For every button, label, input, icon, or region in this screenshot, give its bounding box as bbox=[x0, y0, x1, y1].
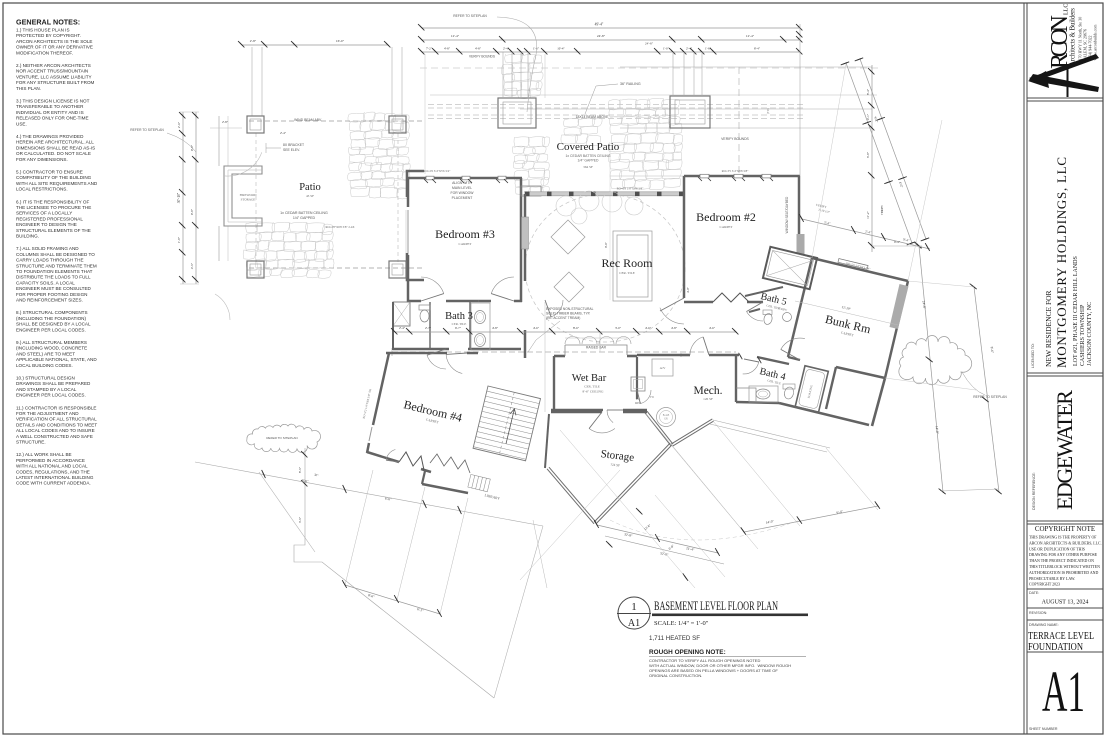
svg-text:12'-4": 12'-4" bbox=[451, 34, 460, 38]
svg-text:WINDOW SEAT/DAYBED: WINDOW SEAT/DAYBED bbox=[785, 196, 789, 233]
svg-text:8'-6": 8'-6" bbox=[573, 326, 580, 330]
svg-text:18X14 BEAM ABOVE: 18X14 BEAM ABOVE bbox=[576, 115, 610, 119]
svg-text:DIMENSIONS SHALL BE READ AS-IS: DIMENSIONS SHALL BE READ AS-IS bbox=[16, 145, 95, 150]
svg-text:ENGINEER MUST BE CONSULTED: ENGINEER MUST BE CONSULTED bbox=[16, 286, 92, 291]
svg-text:CODE WITH CURRENT ADDENDA.: CODE WITH CURRENT ADDENDA. bbox=[16, 481, 91, 486]
svg-text:AND STEEL) ARE TO MEET: AND STEEL) ARE TO MEET bbox=[16, 351, 75, 356]
svg-text:ENGINEER PER LOCAL CODES.: ENGINEER PER LOCAL CODES. bbox=[16, 393, 86, 398]
svg-text:ENGINEER PER LOCAL CODES.: ENGINEER PER LOCAL CODES. bbox=[16, 327, 86, 332]
svg-text:Rec Room: Rec Room bbox=[602, 256, 654, 270]
svg-text:INDIVIDUAL OR ENTITY AND IS: INDIVIDUAL OR ENTITY AND IS bbox=[16, 110, 84, 115]
svg-text:CER. TILE: CER. TILE bbox=[584, 385, 600, 389]
svg-text:3.) THIS DESIGN LICENSE IS NOT: 3.) THIS DESIGN LICENSE IS NOT bbox=[16, 99, 90, 104]
svg-text:9'-8": 9'-8" bbox=[190, 144, 194, 151]
svg-text:CARPET: CARPET bbox=[459, 242, 473, 246]
svg-text:11.) CONTRACTOR IS RESPONSIBLE: 11.) CONTRACTOR IS RESPONSIBLE bbox=[16, 405, 97, 410]
svg-text:VERIFICATION OF ALL STRUCTURAL: VERIFICATION OF ALL STRUCTURAL bbox=[16, 417, 97, 422]
svg-text:10'-4": 10'-4" bbox=[557, 47, 565, 51]
svg-text:2'-8": 2'-8" bbox=[222, 120, 229, 124]
svg-text:A WELL CONSTRUCTED AND SAFE: A WELL CONSTRUCTED AND SAFE bbox=[16, 434, 93, 439]
svg-text:SERVICES OF A LOCALLY: SERVICES OF A LOCALLY bbox=[16, 211, 72, 216]
svg-text:2'-4": 2'-4" bbox=[686, 47, 693, 51]
svg-text:DRAWING FOR ANY OTHER PURPOSE: DRAWING FOR ANY OTHER PURPOSE bbox=[1029, 553, 1098, 557]
svg-text:PROTECTED BY COPYRIGHT.: PROTECTED BY COPYRIGHT. bbox=[16, 33, 81, 38]
svg-text:WITH ALL SITE REQUIREMENTS AND: WITH ALL SITE REQUIREMENTS AND bbox=[16, 181, 98, 186]
svg-text:WITH ALL NATIONAL AND LOCAL: WITH ALL NATIONAL AND LOCAL bbox=[16, 464, 88, 469]
svg-text:VERIFY BOUNDS: VERIFY BOUNDS bbox=[469, 55, 495, 59]
svg-text:REVISION:: REVISION: bbox=[1029, 611, 1047, 615]
svg-text:4'-1": 4'-1" bbox=[866, 113, 870, 120]
svg-text:8.) STRUCTURAL COMPONENTS: 8.) STRUCTURAL COMPONENTS bbox=[16, 310, 88, 315]
svg-text:NEW RESIDENCE FOR: NEW RESIDENCE FOR bbox=[1044, 290, 1053, 367]
svg-text:THIS DRAWING IS THE PROPERTY O: THIS DRAWING IS THE PROPERTY OF bbox=[1029, 536, 1097, 540]
svg-text:ORIGINAL CONSTRUCTION.: ORIGINAL CONSTRUCTION. bbox=[649, 673, 702, 678]
svg-text:4.) THE DRAWINGS PROVIDED: 4.) THE DRAWINGS PROVIDED bbox=[16, 134, 84, 139]
svg-text:PLACEMENT: PLACEMENT bbox=[452, 196, 473, 200]
svg-text:RO=6'8 1/8"X6'8 3/8": RO=6'8 1/8"X6'8 3/8" bbox=[617, 187, 644, 191]
svg-text:8'-6": 8'-6" bbox=[604, 241, 608, 248]
svg-text:(TD): (TD) bbox=[766, 108, 770, 114]
svg-text:EDGEWATER: EDGEWATER bbox=[1052, 390, 1077, 510]
svg-text:RO=2'6 3/4"X5'6 3/4": RO=2'6 3/4"X5'6 3/4" bbox=[424, 169, 451, 173]
svg-text:1/4" GAPPED: 1/4" GAPPED bbox=[293, 216, 316, 220]
svg-text:8'-4": 8'-4" bbox=[866, 88, 870, 95]
svg-text:4'-6": 4'-6" bbox=[645, 326, 652, 330]
svg-text:REFER TO SITEPLAN: REFER TO SITEPLAN bbox=[973, 395, 1007, 399]
svg-text:EXPOSED NON-STRUCTURAL: EXPOSED NON-STRUCTURAL bbox=[546, 307, 594, 311]
svg-text:CODES, REGULATIONS, AND THE: CODES, REGULATIONS, AND THE bbox=[16, 469, 90, 474]
svg-text:Covered Patio: Covered Patio bbox=[557, 141, 620, 153]
svg-text:LATEST INTERNATIONAL BUILDING: LATEST INTERNATIONAL BUILDING bbox=[16, 475, 94, 480]
svg-text:TO FOUNDATION ELEMENTS THAT: TO FOUNDATION ELEMENTS THAT bbox=[16, 269, 93, 274]
svg-text:MODIFICATION THEREOF.: MODIFICATION THEREOF. bbox=[16, 50, 73, 55]
svg-text:43 SF: 43 SF bbox=[306, 194, 314, 198]
svg-text:OWNER OF IT OR ANY DERIVATIVE: OWNER OF IT OR ANY DERIVATIVE bbox=[16, 45, 93, 50]
svg-text:4'-8": 4'-8" bbox=[671, 326, 678, 330]
svg-text:DATE:: DATE: bbox=[1029, 591, 1039, 595]
svg-text:5.) CONTRACTOR TO ENSURE: 5.) CONTRACTOR TO ENSURE bbox=[16, 170, 83, 175]
svg-text:RO=3'5 3/4"X6'8 3/8": RO=3'5 3/4"X6'8 3/8" bbox=[722, 169, 749, 173]
svg-text:FOUNDATION: FOUNDATION bbox=[1028, 641, 1083, 653]
svg-text:CARRY LOADS THROUGH THE: CARRY LOADS THROUGH THE bbox=[16, 258, 84, 263]
svg-text:STRUCTURAL ELEMENTS OF THE: STRUCTURAL ELEMENTS OF THE bbox=[16, 228, 91, 233]
svg-text:1: 1 bbox=[631, 601, 637, 613]
svg-text:APPLICABLE NATIONAL, STATE, AN: APPLICABLE NATIONAL, STATE, AND bbox=[16, 357, 97, 362]
svg-text:BASEMENT LEVEL FLOOR PLAN: BASEMENT LEVEL FLOOR PLAN bbox=[654, 598, 778, 613]
svg-text:DISTRIBUTE THE LOADS TO FULL: DISTRIBUTE THE LOADS TO FULL bbox=[16, 275, 91, 280]
svg-text:THIS PLAN.: THIS PLAN. bbox=[16, 86, 41, 91]
svg-text:2'-4": 2'-4" bbox=[399, 326, 406, 330]
svg-text:A1: A1 bbox=[628, 618, 640, 629]
svg-text:11'-2": 11'-2" bbox=[866, 211, 870, 219]
svg-text:8'-6": 8'-6" bbox=[298, 466, 302, 473]
svg-text:6.) IT IS THE RESPONSIBILITY O: 6.) IT IS THE RESPONSIBILITY OF bbox=[16, 199, 89, 204]
svg-text:WIND BEAM ABV.: WIND BEAM ABV. bbox=[294, 118, 322, 122]
svg-text:DRAWING NAME:: DRAWING NAME: bbox=[1029, 623, 1059, 627]
svg-text:7'-2": 7'-2" bbox=[426, 47, 433, 51]
svg-text:Wet Bar: Wet Bar bbox=[572, 373, 607, 384]
svg-text:REFER TO SITEPLAN: REFER TO SITEPLAN bbox=[266, 436, 297, 440]
svg-text:FOR ANY DIMENSIONS.: FOR ANY DIMENSIONS. bbox=[16, 157, 68, 162]
svg-text:3'-6": 3'-6" bbox=[298, 516, 302, 523]
svg-text:VERIFY: VERIFY bbox=[881, 205, 884, 215]
svg-text:2'-0": 2'-0" bbox=[177, 121, 181, 128]
svg-text:(INCLUDING WOOD, CONCRETE: (INCLUDING WOOD, CONCRETE bbox=[16, 346, 87, 351]
svg-text:12.) ALL WORK SHALL BE: 12.) ALL WORK SHALL BE bbox=[16, 452, 72, 457]
svg-text:TRANSFERABLE TO ANOTHER: TRANSFERABLE TO ANOTHER bbox=[16, 104, 84, 109]
svg-text:Bedroom #3: Bedroom #3 bbox=[435, 227, 495, 241]
svg-text:AUTHORIZATION IS PROHIBITED AN: AUTHORIZATION IS PROHIBITED AND bbox=[1029, 571, 1098, 575]
svg-text:AUGUST 13, 2024: AUGUST 13, 2024 bbox=[1042, 600, 1089, 606]
svg-text:1'-8": 1'-8" bbox=[705, 47, 712, 51]
svg-text:BUILDING.: BUILDING. bbox=[16, 234, 39, 239]
svg-text:JACKSON COUNTY, NC: JACKSON COUNTY, NC bbox=[1087, 302, 1093, 366]
svg-text:2'-4": 2'-4" bbox=[503, 47, 510, 51]
svg-text:SCALE: 1/4" = 1'-0": SCALE: 1/4" = 1'-0" bbox=[654, 620, 709, 627]
svg-text:16'-0": 16'-0" bbox=[336, 39, 345, 43]
svg-text:THAN THE PROJECT INDICATED ON: THAN THE PROJECT INDICATED ON bbox=[1029, 559, 1094, 563]
svg-text:ROUGH OPENING NOTE:: ROUGH OPENING NOTE: bbox=[649, 649, 726, 656]
svg-text:COMPATIBILITY OF THE BUILDING: COMPATIBILITY OF THE BUILDING bbox=[16, 175, 92, 180]
svg-text:GENERAL NOTES:: GENERAL NOTES: bbox=[16, 18, 80, 27]
svg-text:7.) ALL SOLID FRAMING AND: 7.) ALL SOLID FRAMING AND bbox=[16, 246, 79, 251]
svg-text:STRUCTURE.: STRUCTURE. bbox=[16, 440, 46, 445]
svg-text:RO=2'8"X6'8 3/8" 2-4X: RO=2'8"X6'8 3/8" 2-4X bbox=[325, 225, 355, 229]
svg-text:USE OR DUPLICATION OF THIS: USE OR DUPLICATION OF THIS bbox=[1029, 547, 1085, 551]
svg-text:FOR THE ADJUSTMENT AND: FOR THE ADJUSTMENT AND bbox=[16, 411, 79, 416]
svg-text:4'-6": 4'-6" bbox=[190, 262, 194, 269]
svg-text:1/4" GAPPED: 1/4" GAPPED bbox=[578, 159, 600, 163]
svg-text:SEE ELEV.: SEE ELEV. bbox=[283, 148, 300, 152]
svg-text:4'-8": 4'-8" bbox=[492, 326, 499, 330]
svg-text:REFER TO SITEPLAN: REFER TO SITEPLAN bbox=[130, 128, 164, 132]
svg-text:MAIN LEVEL: MAIN LEVEL bbox=[452, 186, 472, 190]
svg-text:A1: A1 bbox=[1042, 659, 1085, 724]
svg-text:LOT #21, PHASE III CEDAR HILL: LOT #21, PHASE III CEDAR HILL LANDS bbox=[1073, 256, 1079, 366]
svg-text:GR: GR bbox=[664, 418, 668, 421]
svg-text:Bedroom #2: Bedroom #2 bbox=[696, 210, 756, 224]
svg-text:CARPET: CARPET bbox=[720, 225, 734, 229]
svg-text:8X BRACKET: 8X BRACKET bbox=[283, 143, 304, 147]
svg-text:HEREIN ARE ARCHITECTURAL. ALL: HEREIN ARE ARCHITECTURAL. ALL bbox=[16, 140, 94, 145]
svg-text:4'-6": 4'-6" bbox=[709, 326, 716, 330]
svg-text:6'-7": 6'-7" bbox=[455, 326, 462, 330]
svg-text:ALIGN WITH: ALIGN WITH bbox=[452, 181, 472, 185]
svg-text:8'-6": 8'-6" bbox=[990, 346, 995, 354]
svg-text:MONTGOMERY HOLDINGS, LLC: MONTGOMERY HOLDINGS, LLC bbox=[1054, 157, 1069, 368]
svg-text:4'-8": 4'-8" bbox=[475, 47, 482, 51]
svg-text:DRAWINGS SHALL BE PREPARED: DRAWINGS SHALL BE PREPARED bbox=[16, 381, 91, 386]
svg-text:1,711 HEATED SF: 1,711 HEATED SF bbox=[649, 635, 700, 642]
svg-text:STRUCTURE AND TERMINATE THEM: STRUCTURE AND TERMINATE THEM bbox=[16, 263, 97, 268]
svg-text:SHEET NUMBER: SHEET NUMBER bbox=[1029, 727, 1058, 731]
svg-text:4'-6": 4'-6" bbox=[533, 326, 540, 330]
svg-text:ARCON ARCHITECTS IS THE SOLE: ARCON ARCHITECTS IS THE SOLE bbox=[16, 39, 93, 44]
svg-text:RELEASED ONLY FOR ONE-TIME: RELEASED ONLY FOR ONE-TIME bbox=[16, 116, 89, 121]
svg-text:SHALL BE DESIGNED BY A LOCAL: SHALL BE DESIGNED BY A LOCAL bbox=[16, 322, 91, 327]
svg-text:VENTURE, LLC ASSUME LIABILITY: VENTURE, LLC ASSUME LIABILITY bbox=[16, 74, 92, 79]
svg-text:NOR ACCENT TRUSS/MOUNTAIN: NOR ACCENT TRUSS/MOUNTAIN bbox=[16, 69, 88, 74]
svg-text:DESIGN REFERENCE:: DESIGN REFERENCE: bbox=[1032, 472, 1036, 510]
svg-text:AND REINFORCEMENT SIZES.: AND REINFORCEMENT SIZES. bbox=[16, 298, 83, 303]
svg-text:REFER TO SITEPLAN: REFER TO SITEPLAN bbox=[453, 14, 487, 18]
svg-text:Patio: Patio bbox=[299, 182, 321, 193]
svg-text:24'-8": 24'-8" bbox=[597, 34, 606, 38]
svg-text:DETAILS AND CONDITIONS TO MEET: DETAILS AND CONDITIONS TO MEET bbox=[16, 422, 97, 427]
svg-text:THIS TITLEBLOCK WITHOUT WRITTE: THIS TITLEBLOCK WITHOUT WRITTEN bbox=[1029, 565, 1100, 569]
svg-text:VERIFY BOUNDS: VERIFY BOUNDS bbox=[721, 137, 749, 141]
svg-text:CER. TILE: CER. TILE bbox=[619, 271, 635, 275]
svg-text:COPYRIGHT 2023: COPYRIGHT 2023 bbox=[1029, 583, 1060, 587]
svg-text:COLUMNS SHALL BE DESIGNED TO: COLUMNS SHALL BE DESIGNED TO bbox=[16, 252, 95, 257]
svg-text:AND STAMPED BY A LOCAL: AND STAMPED BY A LOCAL bbox=[16, 387, 77, 392]
svg-text:(RE: ACCENT TREAM): (RE: ACCENT TREAM) bbox=[546, 316, 580, 320]
svg-text:(INCLUDING THE FOUNDATION): (INCLUDING THE FOUNDATION) bbox=[16, 316, 86, 321]
svg-text:12'-4": 12'-4" bbox=[746, 34, 755, 38]
svg-text:2.) NEITHER ARCON ARCHITECTS: 2.) NEITHER ARCON ARCHITECTS bbox=[16, 63, 91, 68]
svg-text:PROSECUTABLE BY LAW.: PROSECUTABLE BY LAW. bbox=[1029, 577, 1075, 581]
svg-text:FOR PROPER FOOTING DESIGN: FOR PROPER FOOTING DESIGN bbox=[16, 292, 87, 297]
svg-text:PERFORMED IN ACCORDANCE: PERFORMED IN ACCORDANCE bbox=[16, 458, 85, 463]
svg-text:4'-0": 4'-0" bbox=[686, 286, 690, 293]
svg-text:THE LICENSEE TO PROCURE THE: THE LICENSEE TO PROCURE THE bbox=[16, 205, 91, 210]
svg-text:8'-6" CEILING: 8'-6" CEILING bbox=[583, 390, 604, 394]
svg-text:6'-8": 6'-8" bbox=[866, 151, 870, 158]
svg-text:LOCAL RESTRICTIONS.: LOCAL RESTRICTIONS. bbox=[16, 187, 68, 192]
svg-text:10.) STRUCTURAL DESIGN: 10.) STRUCTURAL DESIGN bbox=[16, 376, 75, 381]
svg-text:1'-0": 1'-0" bbox=[663, 47, 670, 51]
svg-text:30'-10": 30'-10" bbox=[177, 192, 181, 203]
svg-text:36" RAILING: 36" RAILING bbox=[620, 82, 641, 86]
svg-text:RAISED BAR: RAISED BAR bbox=[586, 346, 607, 350]
svg-text:OR CALCULATED. DO NOT SCALE: OR CALCULATED. DO NOT SCALE bbox=[16, 151, 91, 156]
svg-text:126 SF: 126 SF bbox=[703, 397, 713, 401]
svg-text:LICENSED TO:: LICENSED TO: bbox=[1031, 343, 1035, 368]
svg-text:A/V: A/V bbox=[660, 366, 666, 370]
svg-text:1'-8": 1'-8" bbox=[177, 236, 181, 243]
svg-text:Bath 3: Bath 3 bbox=[445, 311, 473, 322]
svg-text:4'-8": 4'-8" bbox=[444, 47, 451, 51]
svg-text:ALL LOCAL CODES AND TO INSURE: ALL LOCAL CODES AND TO INSURE bbox=[16, 428, 95, 433]
svg-text:9.) ALL STRUCTURAL MEMBERS: 9.) ALL STRUCTURAL MEMBERS bbox=[16, 340, 87, 345]
svg-text:USE.: USE. bbox=[16, 121, 27, 126]
svg-text:REGISTERED PROFESSIONAL: REGISTERED PROFESSIONAL bbox=[16, 216, 83, 221]
svg-text:Architects & Builders: Architects & Builders bbox=[1069, 8, 1077, 66]
svg-text:FOR WINDOW: FOR WINDOW bbox=[451, 191, 475, 195]
svg-text:CASHIERS TOWNSHIP: CASHIERS TOWNSHIP bbox=[1080, 304, 1086, 366]
svg-text:Mech.: Mech. bbox=[693, 385, 722, 397]
svg-text:3'-0": 3'-0" bbox=[615, 326, 622, 330]
svg-text:1.) THIS HOUSE PLAN IS: 1.) THIS HOUSE PLAN IS bbox=[16, 28, 70, 33]
svg-text:2'-4": 2'-4" bbox=[280, 131, 287, 135]
svg-text:SOLID TIMBER BEAMS, TYP.: SOLID TIMBER BEAMS, TYP. bbox=[546, 312, 591, 316]
svg-text:364 SF: 364 SF bbox=[583, 165, 593, 169]
svg-text:24'-8": 24'-8" bbox=[645, 42, 654, 46]
svg-text:1x CEDAR BATTEN CEILING: 1x CEDAR BATTEN CEILING bbox=[280, 211, 328, 215]
svg-text:LOCAL BUILDING CODES.: LOCAL BUILDING CODES. bbox=[16, 363, 73, 368]
svg-text:9'-8": 9'-8" bbox=[190, 208, 194, 215]
svg-text:COPYRIGHT NOTE: COPYRIGHT NOTE bbox=[1035, 525, 1095, 533]
svg-text:FIREWOOD: FIREWOOD bbox=[240, 193, 258, 197]
svg-text:49'-4": 49'-4" bbox=[595, 23, 604, 27]
svg-text:2'-8": 2'-8" bbox=[250, 39, 257, 43]
svg-text:ENGINEER TO DESIGN THE: ENGINEER TO DESIGN THE bbox=[16, 222, 77, 227]
svg-text:1x CEDAR BATTEN CEILING: 1x CEDAR BATTEN CEILING bbox=[566, 154, 611, 158]
svg-text:2'-7": 2'-7" bbox=[425, 326, 432, 330]
svg-text:FOR ANY STRUCTURE BUILT FROM: FOR ANY STRUCTURE BUILT FROM bbox=[16, 80, 95, 85]
svg-text:8'-4": 8'-4" bbox=[754, 47, 761, 51]
svg-text:CAPACITY SOILS. A LOCAL: CAPACITY SOILS. A LOCAL bbox=[16, 280, 75, 285]
svg-text:STORAGE: STORAGE bbox=[241, 198, 256, 202]
